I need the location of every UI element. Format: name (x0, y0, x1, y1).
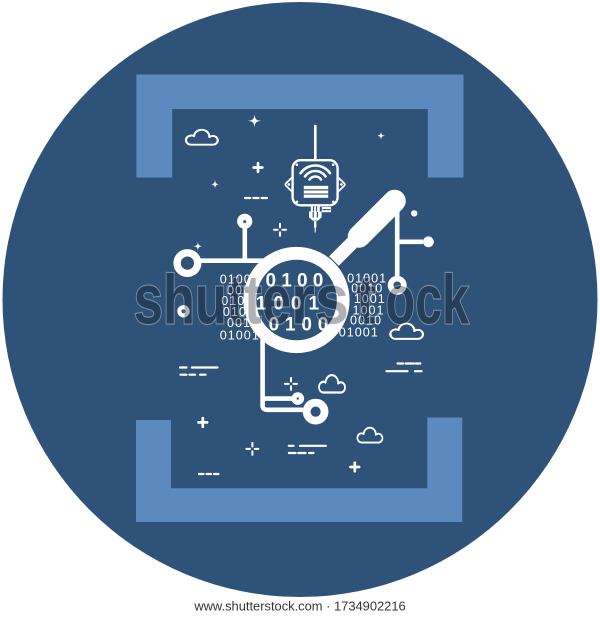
svg-text:www.shutterstock.com · 1734902: www.shutterstock.com · 1734902216 (193, 599, 405, 614)
svg-text:rs: rs (291, 261, 349, 339)
svg-text:shutte: shutte (134, 261, 291, 339)
svg-text:ock: ock (386, 261, 470, 339)
svg-text:t: t (356, 261, 376, 339)
